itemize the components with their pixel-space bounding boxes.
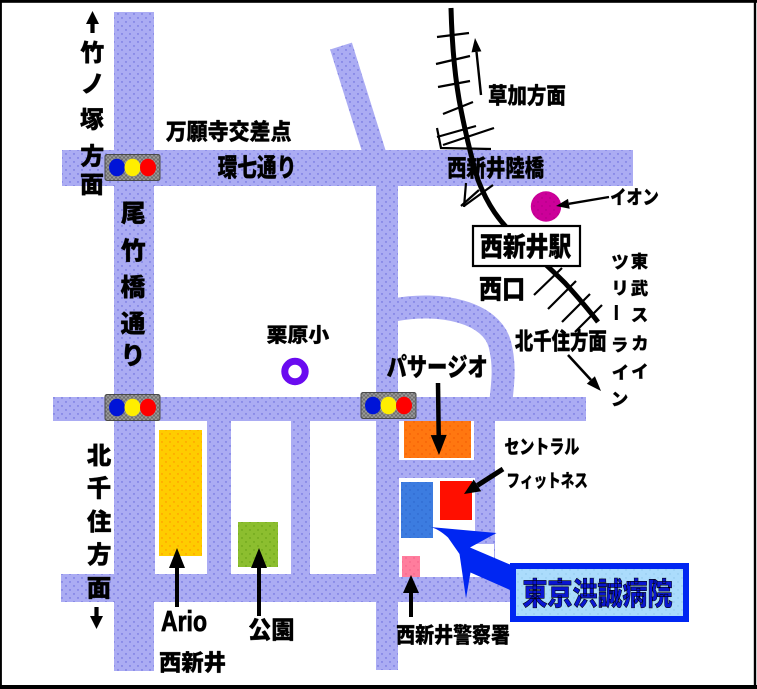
svg-text:Ario: Ario xyxy=(161,606,207,638)
